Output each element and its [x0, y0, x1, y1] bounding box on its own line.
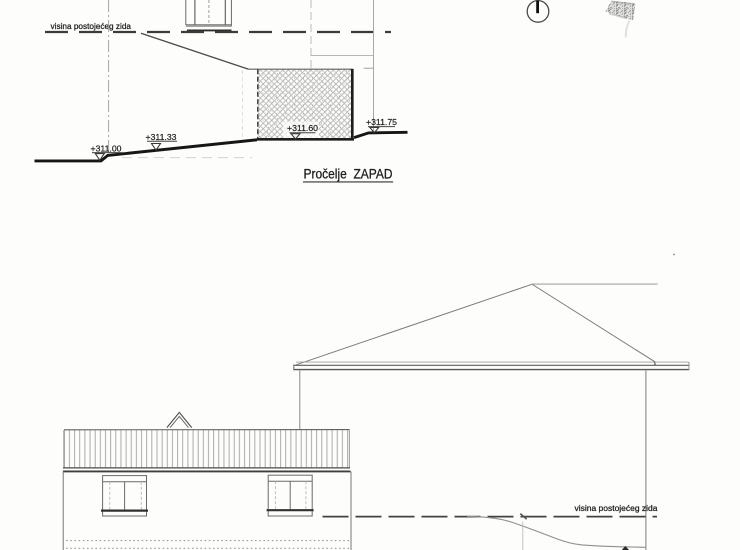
svg-text:+311.33: +311.33 [146, 132, 177, 142]
svg-text:+311.00: +311.00 [91, 143, 122, 153]
svg-text:visina postojećeg zida: visina postojećeg zida [575, 503, 658, 513]
svg-text:Pročelje ZAPAD: Pročelje ZAPAD [304, 167, 393, 182]
svg-text:visina postojećeg zida: visina postojećeg zida [51, 21, 132, 31]
svg-text:+311.60: +311.60 [287, 123, 318, 133]
svg-text:+311.75: +311.75 [366, 117, 397, 127]
